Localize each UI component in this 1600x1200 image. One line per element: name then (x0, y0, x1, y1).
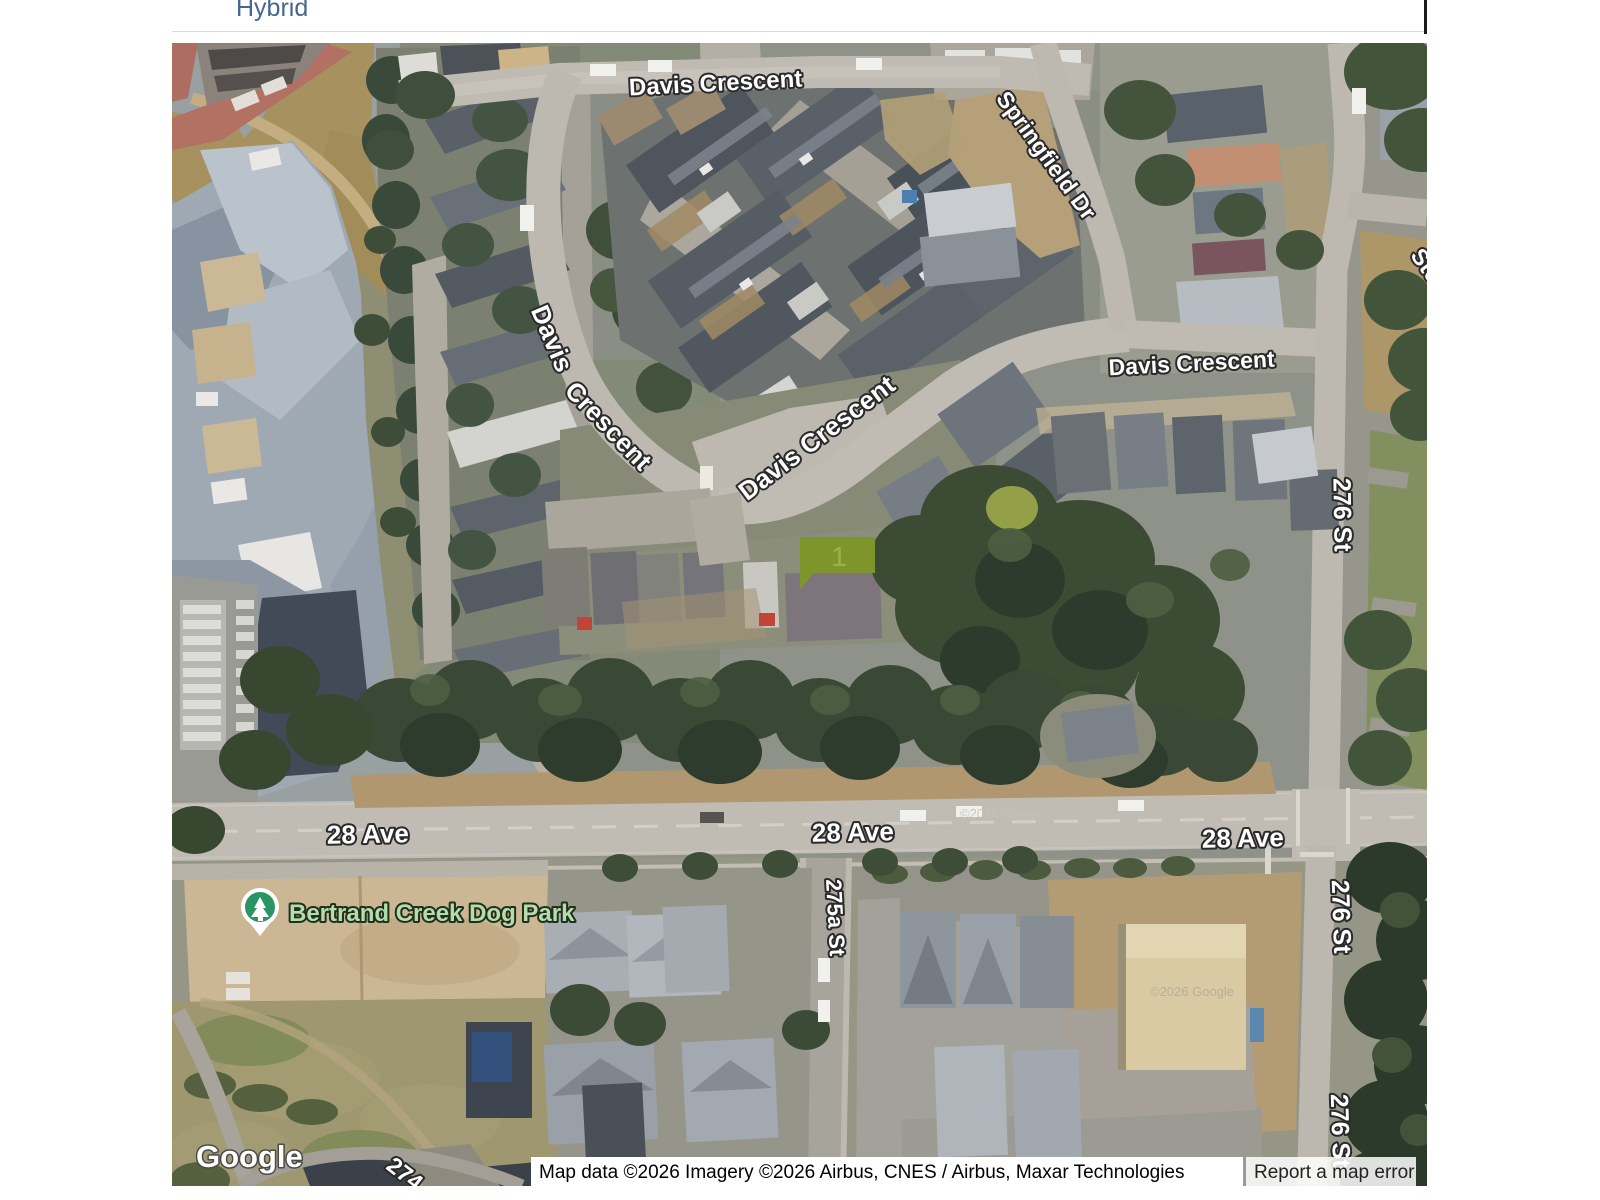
svg-text:276 St: 276 St (1326, 879, 1357, 954)
svg-text:28 Ave: 28 Ave (1202, 822, 1284, 853)
svg-text:Bertrand Creek Dog Park: Bertrand Creek Dog Park (289, 900, 575, 927)
svg-text:28 Ave: 28 Ave (327, 818, 409, 849)
svg-text:Google: Google (196, 1139, 303, 1174)
svg-text:Map data ©2026 Imagery ©2026 A: Map data ©2026 Imagery ©2026 Airbus, CNE… (539, 1162, 1185, 1183)
svg-text:©2026 Google: ©2026 Google (960, 806, 1044, 821)
svg-text:28 Ave: 28 Ave (812, 816, 894, 847)
svg-text:©2026 Google: ©2026 Google (1150, 984, 1234, 999)
svg-text:276 St: 276 St (1327, 478, 1356, 553)
svg-text:1: 1 (831, 541, 847, 572)
svg-text:275a St: 275a St (821, 878, 850, 957)
svg-text:Report a map error: Report a map error (1254, 1162, 1415, 1183)
